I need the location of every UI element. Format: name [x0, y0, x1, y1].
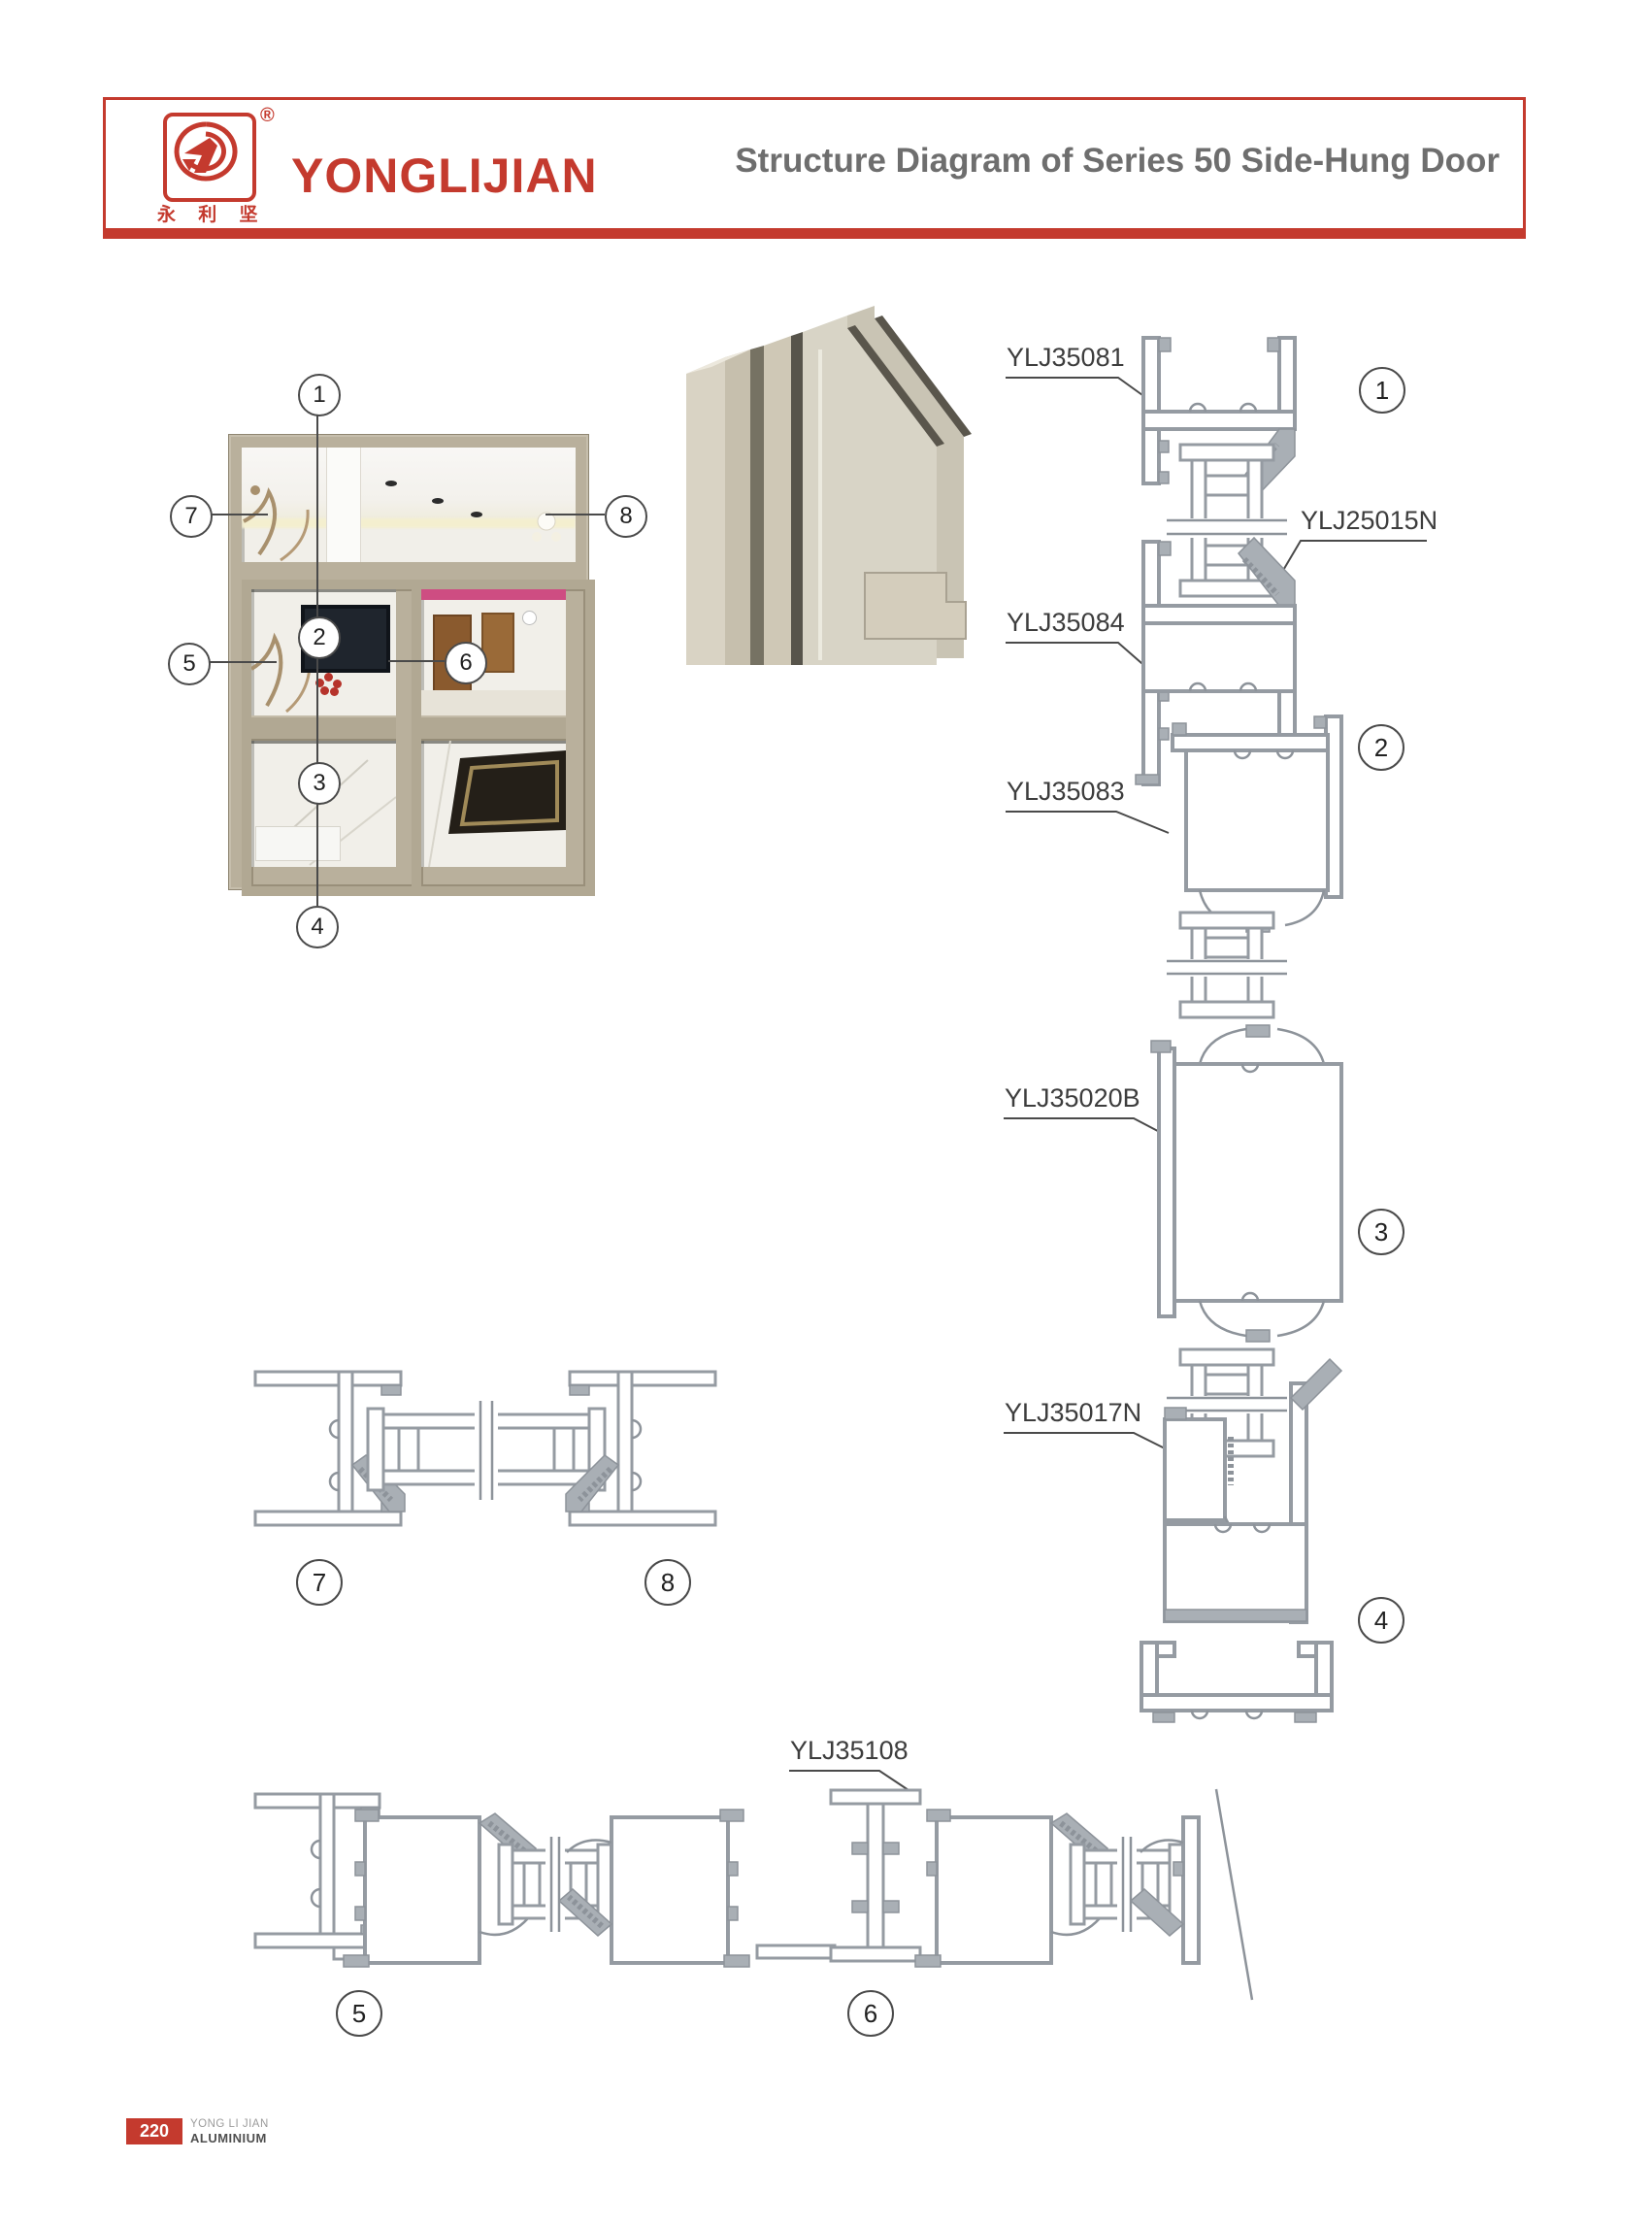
footer-company-tagline: ALUMINIUM	[190, 2131, 267, 2145]
door-horizontal-section	[250, 1784, 1260, 2008]
callout-8: 8	[605, 495, 647, 538]
callout-3: 3	[298, 762, 341, 805]
callout-6: 6	[445, 642, 487, 684]
section-callout-7: 7	[296, 1559, 343, 1606]
vertical-section-drawing	[1000, 233, 1417, 1757]
callout-4: 4	[296, 906, 339, 948]
part-label-head-frame: YLJ35081	[1007, 343, 1125, 373]
part-label-sash-top: YLJ35084	[1007, 608, 1125, 638]
section-callout-6: 6	[847, 1990, 894, 2037]
footer-company-name: YONG LI JIAN	[190, 2118, 269, 2130]
section-callout-4: 4	[1358, 1597, 1404, 1644]
catalog-page: ® 永 利 坚 YONGLIJIAN Structure Diagram of …	[0, 0, 1652, 2227]
callout-5: 5	[168, 643, 211, 685]
callout-7: 7	[170, 495, 213, 538]
section-callout-2: 2	[1358, 724, 1404, 771]
part-label-bottom-rail: YLJ35017N	[1005, 1398, 1141, 1428]
part-label-glazing-bead: YLJ25015N	[1301, 506, 1437, 536]
section-callout-3: 3	[1358, 1209, 1404, 1255]
section-callout-1: 1	[1359, 367, 1405, 414]
transom-horizontal-section	[248, 1364, 723, 1539]
callout-1: 1	[298, 374, 341, 416]
callout-2: 2	[298, 616, 341, 659]
section-callout-5: 5	[336, 1990, 382, 2037]
part-label-transom: YLJ35083	[1007, 777, 1125, 807]
section-callout-8: 8	[644, 1559, 691, 1606]
page-number-badge: 220	[126, 2118, 182, 2144]
part-label-mullion: YLJ35108	[790, 1736, 909, 1766]
part-label-door-leaf: YLJ35020B	[1005, 1083, 1140, 1113]
